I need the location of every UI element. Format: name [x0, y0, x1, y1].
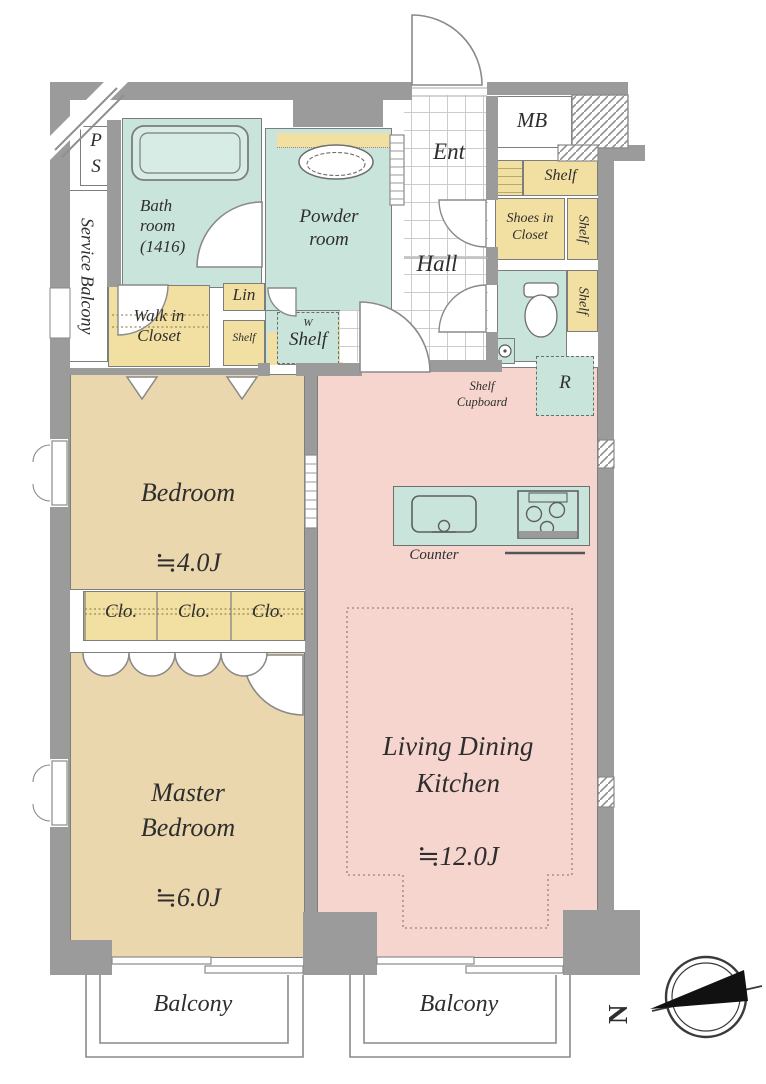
hall-label: Hall — [394, 250, 480, 278]
floor-plan: P S Service Balcony Bath room (1416) Pow… — [0, 0, 766, 1084]
bedroom-label-group: Bedroom ≒4.0J — [95, 440, 281, 615]
shelf-side-lower-label: Shelf — [567, 272, 598, 330]
balcony-right-label: Balcony — [404, 990, 514, 1019]
balcony-left-label: Balcony — [138, 990, 248, 1019]
ldk-balcony-window — [377, 957, 563, 973]
wall-hall-shoes-1 — [486, 160, 498, 200]
wall-top-right — [487, 82, 628, 95]
wall-top-powder — [293, 96, 383, 127]
w-shelf-label: Shelf — [277, 329, 339, 352]
bedroom-sliding-door — [305, 455, 317, 528]
compass-north-label: N — [602, 996, 634, 1032]
bath-label: Bath room (1416) — [126, 196, 232, 257]
wall-right — [598, 150, 614, 912]
wall-hall-shoes-3 — [486, 332, 498, 362]
wall-bed-ldk-upper — [305, 375, 317, 457]
powder-counter-strip — [277, 133, 390, 148]
shelf-top-lined — [497, 160, 523, 196]
bedroom-label: Bedroom — [95, 475, 281, 510]
ldk-label-group: Living Dining Kitchen ≒12.0J — [330, 692, 586, 911]
master-balcony-window — [112, 957, 303, 973]
mb-label: MB — [492, 108, 572, 133]
shelf-top-label: Shelf — [523, 166, 598, 185]
shelf-side-upper-label: Shelf — [567, 200, 598, 258]
wall-hall-shoes-2 — [486, 247, 498, 285]
powder-label: Powder room — [268, 206, 390, 252]
wall-wic-bedroom — [70, 368, 260, 375]
wall-right-tee — [598, 145, 645, 161]
closet-3-label: Clo. — [231, 601, 305, 624]
ent-label: Ent — [410, 138, 488, 166]
bedroom-size-label: ≒4.0J — [95, 545, 281, 580]
wall-bed-ldk-lower — [305, 527, 317, 958]
master-bedroom-label: Master Bedroom — [88, 775, 288, 845]
compass-needle — [650, 970, 748, 1009]
walk-in-closet-label: Walk in Closet — [108, 306, 210, 347]
counter-label: Counter — [395, 546, 473, 564]
compass — [650, 957, 762, 1037]
lin-label: Lin — [223, 285, 265, 305]
closet-1-label: Clo. — [85, 601, 157, 624]
mb-corner-hatch — [572, 95, 628, 148]
shoes-closet-label: Shoes in Closet — [495, 211, 565, 245]
wall-hall-ldk-right — [430, 360, 502, 372]
shelf-cupboard-label: Shelf Cupboard — [447, 379, 517, 410]
closet-2-label: Clo. — [157, 601, 231, 624]
refrigerator-label: R — [536, 372, 594, 395]
kitchen-counter — [393, 486, 590, 546]
service-balcony-label: Service Balcony — [68, 192, 106, 360]
entrance-door — [412, 15, 482, 85]
shelf-small-label: Shelf — [223, 332, 265, 346]
entrance-shelf-strip — [390, 135, 404, 205]
ldk-size-label: ≒12.0J — [330, 838, 586, 874]
ps-label: P S — [80, 128, 112, 179]
master-size-label: ≒6.0J — [88, 880, 288, 915]
master-bedroom-label-group: Master Bedroom ≒6.0J — [88, 740, 288, 951]
ldk-label: Living Dining Kitchen — [330, 728, 586, 801]
wall-bottom-right — [563, 910, 640, 975]
wall-left — [50, 100, 70, 955]
